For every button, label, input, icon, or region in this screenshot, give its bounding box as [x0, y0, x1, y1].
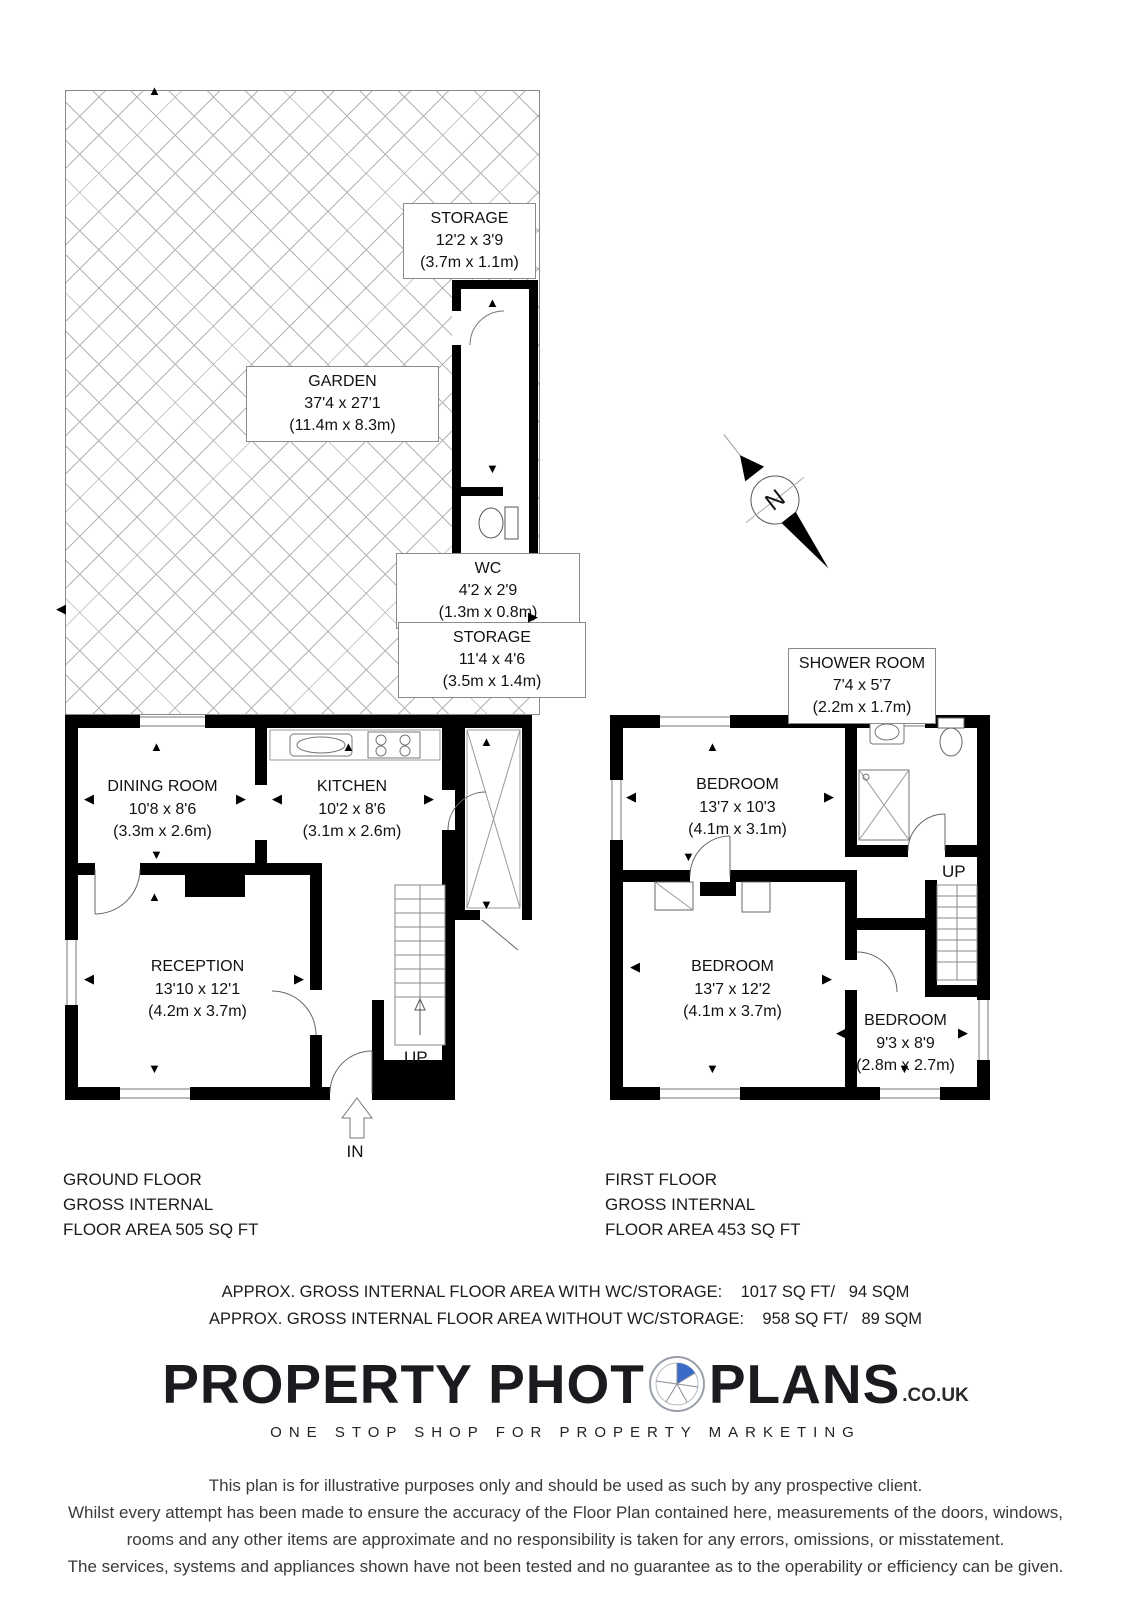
room-size-metric: (4.1m x 3.1m)	[630, 819, 845, 842]
measure-arrow-icon: ▼	[706, 1062, 719, 1075]
room-name: GARDEN	[253, 371, 432, 393]
room-label-storage-house: STORAGE 11'4 x 4'6 (3.5m x 1.4m)	[398, 622, 586, 698]
summary-line-without: APPROX. GROSS INTERNAL FLOOR AREA WITHOU…	[0, 1310, 1131, 1329]
measure-arrow-icon: ▶	[528, 610, 538, 623]
measure-arrow-icon: ▶	[294, 972, 304, 985]
room-name: BEDROOM	[630, 774, 845, 797]
summary-line-with: APPROX. GROSS INTERNAL FLOOR AREA WITH W…	[0, 1283, 1131, 1302]
measure-arrow-icon: ▼	[480, 898, 493, 911]
disclaimer-line: Whilst every attempt has been made to en…	[0, 1500, 1131, 1527]
room-name: BEDROOM	[625, 956, 840, 979]
room-label-wc: WC 4'2 x 2'9 (1.3m x 0.8m)	[396, 553, 580, 629]
room-size-imperial: 11'4 x 4'6	[405, 649, 579, 671]
room-label-storage-outbuilding: STORAGE 12'2 x 3'9 (3.7m x 1.1m)	[403, 203, 536, 279]
caption-line: FLOOR AREA 453 SQ FT	[605, 1217, 801, 1242]
room-label-garden: GARDEN 37'4 x 27'1 (11.4m x 8.3m)	[246, 366, 439, 442]
room-size-metric: (3.7m x 1.1m)	[410, 252, 529, 274]
room-label-shower-room: SHOWER ROOM 7'4 x 5'7 (2.2m x 1.7m)	[788, 648, 936, 724]
stairs-up-label-ground: UP	[404, 1048, 428, 1068]
room-name: DINING ROOM	[80, 776, 245, 799]
caption-line: GROUND FLOOR	[63, 1167, 259, 1192]
room-size-imperial: 13'10 x 12'1	[95, 979, 300, 1002]
measure-arrow-icon: ▼	[898, 1062, 911, 1075]
wc-toilet-icon	[461, 289, 529, 553]
measure-arrow-icon: ▲	[148, 84, 161, 97]
measure-arrow-icon: ▲	[342, 740, 355, 753]
camera-aperture-icon	[647, 1354, 707, 1414]
room-size-imperial: 13'7 x 10'3	[630, 797, 845, 820]
ground-floor-caption: GROUND FLOOR GROSS INTERNAL FLOOR AREA 5…	[63, 1167, 259, 1242]
measure-arrow-icon: ▶	[958, 1026, 968, 1039]
measure-arrow-icon: ◀	[56, 602, 66, 615]
measure-arrow-icon: ▲	[480, 735, 493, 748]
room-size-metric: (2.2m x 1.7m)	[795, 697, 929, 719]
measure-arrow-icon: ▶	[822, 972, 832, 985]
room-size-metric: (1.3m x 0.8m)	[403, 602, 573, 624]
measure-arrow-icon: ▼	[486, 462, 499, 475]
ground-floor-plan	[50, 690, 550, 1160]
room-size-imperial: 10'8 x 8'6	[80, 799, 245, 822]
logo-suffix: .CO.UK	[902, 1385, 969, 1407]
room-label-bedroom-2: BEDROOM 13'7 x 12'2 (4.1m x 3.7m)	[625, 956, 840, 1024]
room-size-imperial: 13'7 x 12'2	[625, 979, 840, 1002]
garden-outbuilding	[452, 280, 538, 562]
measure-arrow-icon: ◀	[630, 960, 640, 973]
caption-line: FLOOR AREA 505 SQ FT	[63, 1217, 259, 1242]
room-name: STORAGE	[410, 208, 529, 230]
measure-arrow-icon: ▲	[706, 740, 719, 753]
room-size-metric: (3.3m x 2.6m)	[80, 821, 245, 844]
room-size-metric: (11.4m x 8.3m)	[253, 415, 432, 437]
room-name: WC	[403, 558, 573, 580]
measure-arrow-icon: ◀	[84, 792, 94, 805]
measure-arrow-icon: ▶	[236, 792, 246, 805]
room-size-imperial: 4'2 x 2'9	[403, 580, 573, 602]
room-name: RECEPTION	[95, 956, 300, 979]
caption-line: GROSS INTERNAL	[605, 1192, 801, 1217]
measure-arrow-icon: ▼	[150, 848, 163, 861]
room-name: STORAGE	[405, 627, 579, 649]
room-size-imperial: 12'2 x 3'9	[410, 230, 529, 252]
room-label-kitchen: KITCHEN 10'2 x 8'6 (3.1m x 2.6m)	[267, 776, 437, 844]
disclaimer-line: rooms and any other items are approximat…	[0, 1527, 1131, 1554]
first-floor-caption: FIRST FLOOR GROSS INTERNAL FLOOR AREA 45…	[605, 1167, 801, 1242]
measure-arrow-icon: ▼	[682, 850, 695, 863]
caption-line: FIRST FLOOR	[605, 1167, 801, 1192]
floorplan-page: N STORAGE 12'2 x 3'9 (3.7m x 1.1m) GARDE…	[0, 0, 1131, 1600]
entrance-in-label: IN	[335, 1142, 375, 1162]
logo-tagline: ONE STOP SHOP FOR PROPERTY MARKETING	[0, 1424, 1131, 1441]
room-size-imperial: 9'3 x 8'9	[833, 1033, 978, 1056]
measure-arrow-icon: ▲	[486, 296, 499, 309]
room-label-dining-room: DINING ROOM 10'8 x 8'6 (3.3m x 2.6m)	[80, 776, 245, 844]
logo-text-right: PLANS	[709, 1352, 900, 1416]
room-size-metric: (3.5m x 1.4m)	[405, 671, 579, 693]
logo: PROPERTY PHOT PLANS .CO.UK	[0, 1352, 1131, 1416]
measure-arrow-icon: ▼	[148, 1062, 161, 1075]
measure-arrow-icon: ▶	[824, 790, 834, 803]
room-label-reception: RECEPTION 13'10 x 12'1 (4.2m x 3.7m)	[95, 956, 300, 1024]
room-size-imperial: 7'4 x 5'7	[795, 675, 929, 697]
room-label-bedroom-1: BEDROOM 13'7 x 10'3 (4.1m x 3.1m)	[630, 774, 845, 842]
measure-arrow-icon: ▶	[424, 792, 434, 805]
measure-arrow-icon: ◀	[836, 1026, 846, 1039]
door-opening	[452, 311, 461, 345]
measure-arrow-icon: ◀	[272, 792, 282, 805]
measure-arrow-icon: ◀	[626, 790, 636, 803]
room-size-imperial: 10'2 x 8'6	[267, 799, 437, 822]
compass-north-icon: N	[700, 415, 850, 590]
caption-line: GROSS INTERNAL	[63, 1192, 259, 1217]
measure-arrow-icon: ▲	[148, 890, 161, 903]
room-size-metric: (4.1m x 3.7m)	[625, 1001, 840, 1024]
logo-text-left: PROPERTY PHOT	[162, 1352, 645, 1416]
room-name: KITCHEN	[267, 776, 437, 799]
room-name: BEDROOM	[833, 1010, 978, 1033]
measure-arrow-icon: ◀	[84, 972, 94, 985]
room-size-imperial: 37'4 x 27'1	[253, 393, 432, 415]
room-size-metric: (3.1m x 2.6m)	[267, 821, 437, 844]
disclaimer-line: The services, systems and appliances sho…	[0, 1554, 1131, 1581]
measure-arrow-icon: ▲	[150, 740, 163, 753]
room-size-metric: (4.2m x 3.7m)	[95, 1001, 300, 1024]
room-name: SHOWER ROOM	[795, 653, 929, 675]
stairs-up-label-first: UP	[942, 862, 966, 882]
disclaimer-line: This plan is for illustrative purposes o…	[0, 1473, 1131, 1500]
